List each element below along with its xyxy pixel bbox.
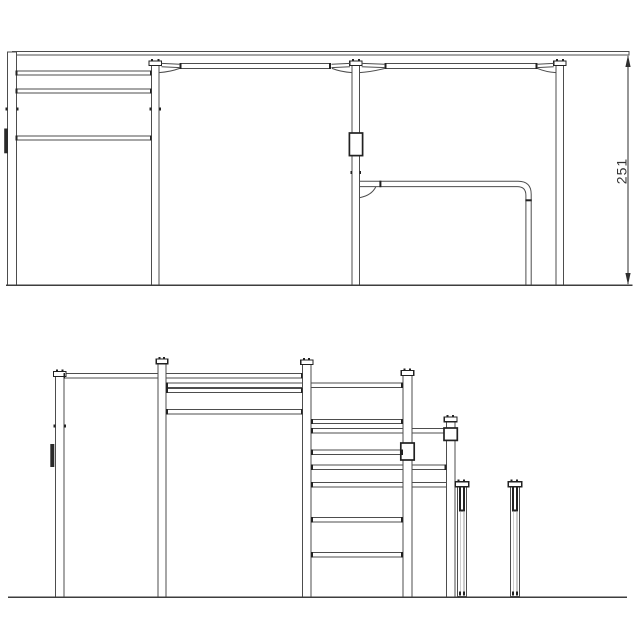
top-side-bar [62, 374, 305, 378]
calisthenics-rig-drawing: 251 [0, 0, 640, 640]
mounting-tab [50, 444, 54, 467]
post-cap [156, 359, 168, 364]
beam-segment [386, 64, 537, 69]
ladder-rung [309, 429, 446, 433]
pull-up-bars [14, 71, 152, 140]
dimension-label: 251 [614, 158, 630, 184]
side-rail [164, 410, 304, 414]
ladder-rung [309, 419, 405, 423]
short-post-f [455, 480, 468, 597]
beam-segment [181, 64, 331, 69]
top-beam [13, 52, 630, 55]
side-bars [62, 374, 457, 558]
pull-up-bar [14, 71, 152, 75]
short-post-body [510, 487, 519, 597]
arrow-down-icon [625, 273, 630, 285]
post-c [303, 365, 311, 598]
post-e [446, 422, 455, 597]
short-post-cap [455, 482, 468, 487]
pull-up-bar [14, 89, 152, 93]
low-bar-assembly [360, 181, 532, 285]
post-cap [350, 61, 362, 66]
arrow-up-icon [625, 55, 630, 67]
low-parallel-bar [309, 483, 457, 488]
post-cap [301, 360, 313, 365]
post-mid-right [352, 66, 360, 286]
post-left [8, 52, 17, 285]
post-b [158, 364, 166, 597]
low-bar-outer [360, 181, 531, 285]
ladder-rung [309, 553, 405, 558]
ladder-rung [309, 450, 405, 454]
pull-up-bar [14, 136, 152, 140]
post-a [55, 376, 64, 597]
post-cap [401, 371, 414, 376]
post-right [556, 66, 564, 286]
front-elevation-view: 251 [4, 52, 632, 286]
mounting-tab [4, 129, 8, 154]
connector-ticks [6, 63, 538, 174]
ladder-rung [309, 518, 405, 523]
post-d [403, 375, 412, 597]
side-rail [164, 389, 304, 393]
post-cap [554, 61, 566, 66]
short-post-body [457, 487, 466, 597]
ladder-rung [309, 465, 448, 469]
low-bar-inner [360, 187, 526, 285]
side-rail [164, 383, 404, 387]
technical-drawing-canvas: 251 [0, 0, 640, 640]
front-posts [8, 52, 564, 285]
low-bar-gusset [360, 187, 376, 198]
post-cap [444, 417, 457, 422]
height-dimension: 251 [614, 55, 631, 285]
short-post-g [508, 480, 521, 597]
post-sleeve-clamp [349, 133, 362, 156]
side-elevation-view [8, 357, 627, 597]
post-mid-left [152, 66, 160, 286]
side-posts [55, 364, 455, 597]
post-cap [149, 61, 162, 66]
short-post-cap [508, 482, 521, 487]
top-beam-tube [13, 52, 630, 55]
post-sleeve-clamp [444, 428, 457, 440]
